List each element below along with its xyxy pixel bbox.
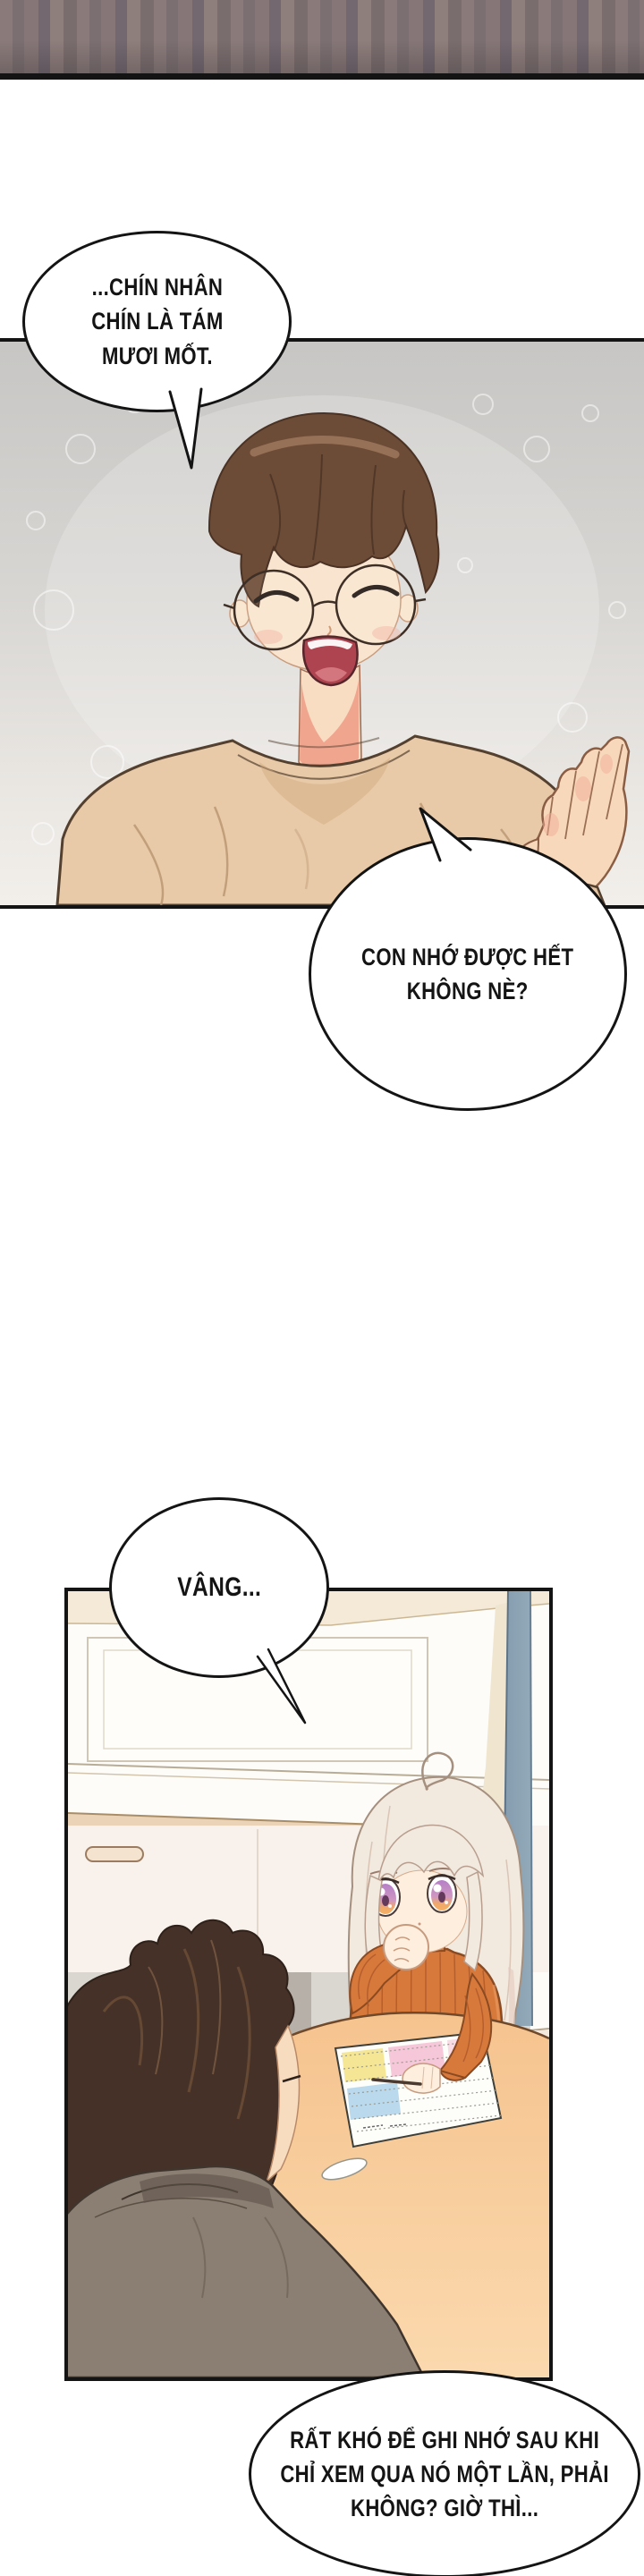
bubble2-line1: CON NHỚ ĐƯỢC HẾT xyxy=(361,940,573,974)
father-illustration xyxy=(0,342,644,905)
child-fist xyxy=(384,1925,428,1970)
speech-bubble-2: CON NHỚ ĐƯỢC HẾT KHÔNG NÈ? xyxy=(309,837,627,1111)
speech-bubble-2-text: CON NHỚ ĐƯỢC HẾT KHÔNG NÈ? xyxy=(361,940,573,1009)
cabinet-handle xyxy=(86,1847,143,1861)
bubble4-line1: RẤT KHÓ ĐỂ GHI NHỚ SAU KHI xyxy=(280,2423,609,2457)
bubble4-line2: CHỈ XEM QUA NÓ MỘT LẦN, PHẢI xyxy=(280,2457,609,2491)
bubble1-line2: CHÍN LÀ TÁM xyxy=(91,304,223,338)
bubble-2-tail xyxy=(407,801,487,864)
bubble3-line1: VÂNG... xyxy=(177,1569,261,1607)
bubble-3-tail xyxy=(249,1644,316,1733)
bubble1-line3: MƯƠI MỐT. xyxy=(91,339,223,373)
panel-1-father xyxy=(0,338,644,909)
speech-bubble-3-text: VÂNG... xyxy=(177,1569,261,1607)
speech-bubble-1-text: ...CHÍN NHÂN CHÍN LÀ TÁM MƯƠI MỐT. xyxy=(91,270,223,373)
top-decorative-band xyxy=(0,0,644,73)
comic-page: ...CHÍN NHÂN CHÍN LÀ TÁM MƯƠI MỐT. CON N… xyxy=(0,0,644,2576)
top-band-divider xyxy=(0,73,644,80)
bubble4-line3: KHÔNG? GIỜ THÌ... xyxy=(280,2491,609,2525)
bubble-1-tail xyxy=(152,385,215,465)
speech-bubble-4-text: RẤT KHÓ ĐỂ GHI NHỚ SAU KHI CHỈ XEM QUA N… xyxy=(280,2423,609,2526)
bubble1-line1: ...CHÍN NHÂN xyxy=(91,270,223,304)
speech-bubble-4: RẤT KHÓ ĐỂ GHI NHỚ SAU KHI CHỈ XEM QUA N… xyxy=(249,2370,640,2576)
bubble2-line2: KHÔNG NÈ? xyxy=(361,974,573,1008)
